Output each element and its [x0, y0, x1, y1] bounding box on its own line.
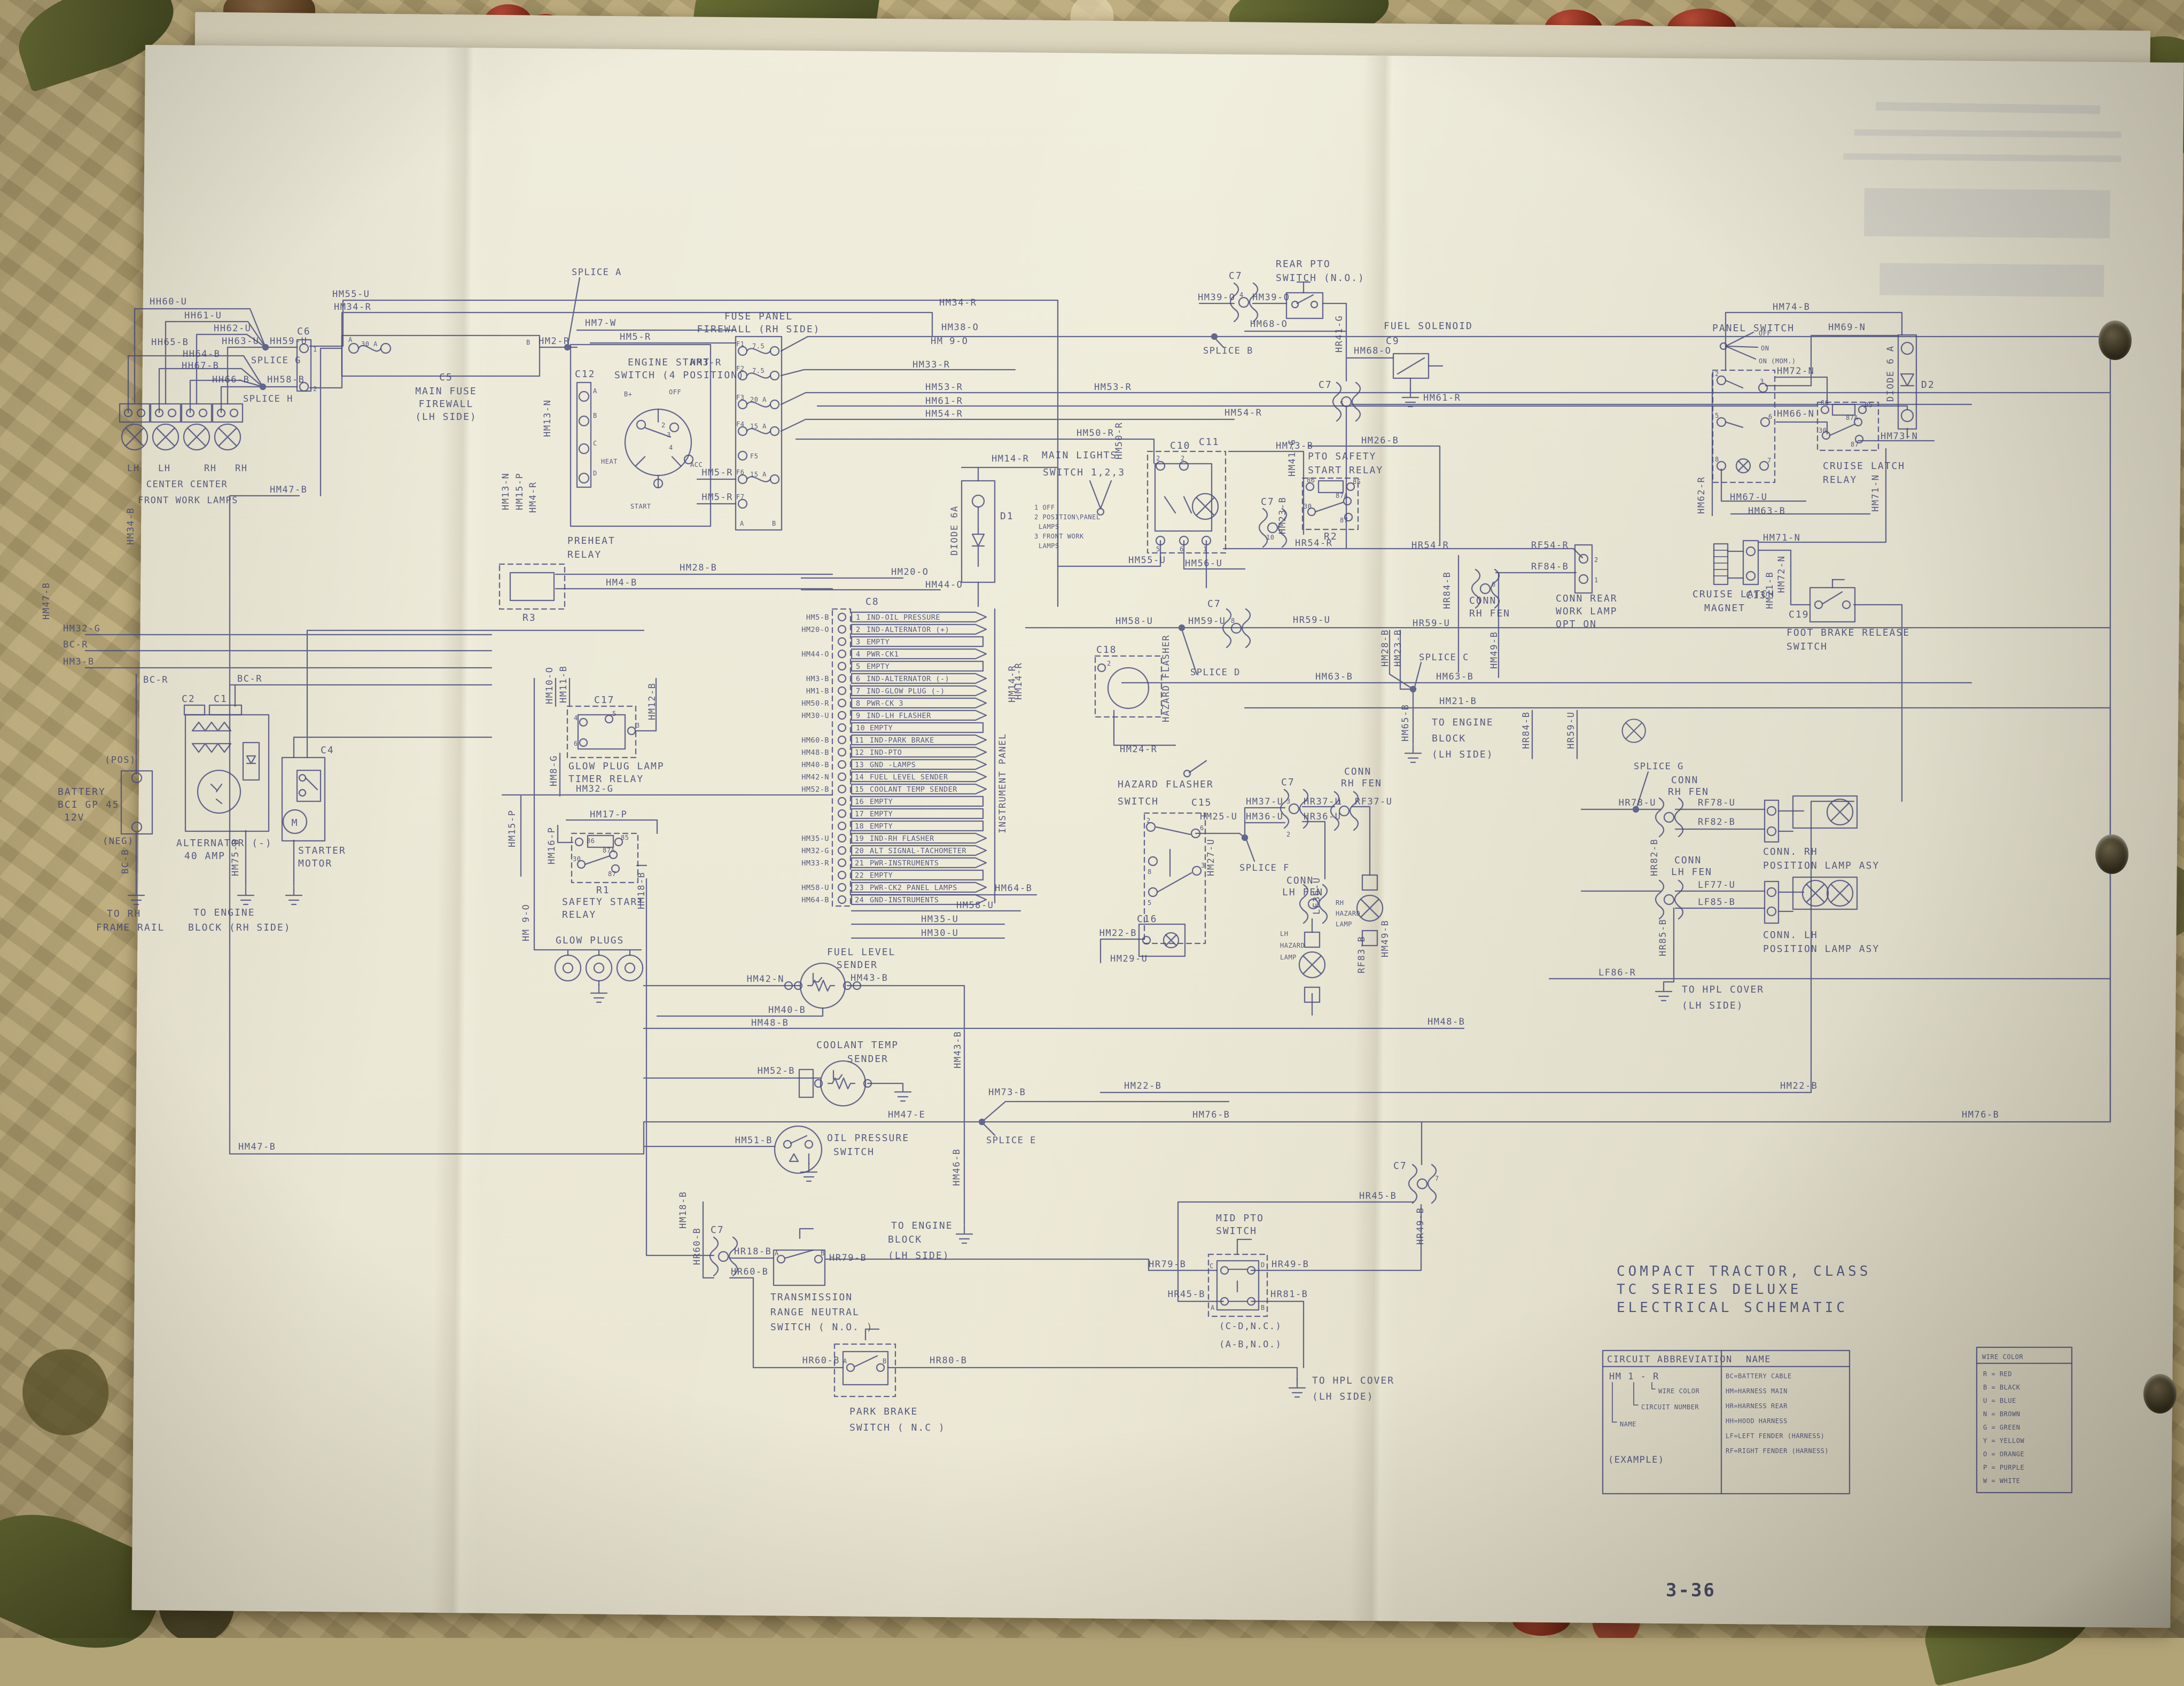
- svg-text:1 OFF: 1 OFF: [1034, 504, 1055, 511]
- svg-text:PTO SAFETY: PTO SAFETY: [1308, 451, 1376, 462]
- svg-text:RF37-U: RF37-U: [1355, 797, 1392, 807]
- svg-text:W = WHITE: W = WHITE: [1983, 1477, 2021, 1485]
- svg-text:EMPTY: EMPTY: [870, 810, 893, 818]
- svg-text:TIMER RELAY: TIMER RELAY: [568, 774, 644, 785]
- svg-text:HH64-B: HH64-B: [183, 349, 220, 360]
- svg-text:C7: C7: [1281, 777, 1295, 788]
- svg-text:B = BLACK: B = BLACK: [1983, 1384, 2021, 1391]
- svg-text:CRUISE LATCH: CRUISE LATCH: [1823, 460, 1905, 472]
- svg-text:C1: C1: [214, 693, 228, 705]
- svg-text:HR78-U: HR78-U: [1619, 798, 1656, 808]
- wire-label: HM54-R: [1224, 408, 1262, 418]
- svg-text:EMPTY: EMPTY: [867, 662, 890, 671]
- svg-text:40 AMP: 40 AMP: [184, 850, 225, 862]
- svg-text:2: 2: [1181, 455, 1185, 462]
- svg-text:HM5-R: HM5-R: [701, 467, 733, 478]
- wire-label: HM39-O: [1252, 292, 1290, 303]
- svg-text:2: 2: [1715, 370, 1719, 378]
- svg-text:WIRE COLOR: WIRE COLOR: [1658, 1387, 1700, 1395]
- svg-text:SWITCH: SWITCH: [1787, 641, 1828, 652]
- svg-text:2: 2: [1146, 817, 1151, 824]
- lamp-label: RH: [235, 463, 247, 474]
- svg-text:20 A: 20 A: [750, 396, 767, 403]
- svg-text:1: 1: [1203, 545, 1207, 553]
- svg-text:(LH SIDE): (LH SIDE): [1682, 1000, 1744, 1011]
- svg-text:85: 85: [621, 834, 629, 841]
- wire-label: HM44-O: [925, 580, 963, 590]
- svg-text:GND -LAMPS: GND -LAMPS: [870, 761, 916, 769]
- svg-text:8: 8: [1715, 456, 1719, 463]
- svg-text:HM72-N: HM72-N: [1777, 366, 1814, 377]
- svg-text:ON (MOM.): ON (MOM.): [1759, 357, 1796, 365]
- svg-text:MAIN LIGHTS: MAIN LIGHTS: [1042, 450, 1117, 461]
- wire-label: HM26-B: [1361, 435, 1399, 446]
- svg-text:TRANSMISSION: TRANSMISSION: [770, 1292, 853, 1303]
- svg-text:D: D: [1261, 1261, 1265, 1269]
- svg-text:C6: C6: [297, 326, 311, 337]
- position-lamp-assemblies: SPLICE G CONNRH FEN HR78-U RF78-U RF82-B…: [1598, 719, 1879, 1011]
- cruise-latch-relay: 8685 3087A87 CRUISE LATCH RELAY HM73-N H…: [1818, 399, 1918, 512]
- svg-text:HH58-B: HH58-B: [267, 374, 305, 385]
- svg-text:HM21-B: HM21-B: [1765, 572, 1775, 609]
- fuse-row: F7: [736, 493, 747, 508]
- connector-label: C7: [1319, 379, 1332, 391]
- svg-text:MAIN FUSE: MAIN FUSE: [415, 386, 477, 397]
- wire-label: SPLICE B: [1203, 346, 1253, 356]
- svg-text:COMPACT TRACTOR, CLASS: COMPACT TRACTOR, CLASS: [1617, 1263, 1871, 1279]
- svg-text:BC=BATTERY CABLE: BC=BATTERY CABLE: [1726, 1372, 1792, 1380]
- svg-text:HM14-R: HM14-R: [992, 454, 1029, 464]
- binder-hole: [2143, 1374, 2177, 1414]
- svg-text:BCI GP 45: BCI GP 45: [58, 799, 120, 810]
- svg-text:F1: F1: [736, 340, 744, 348]
- alternator: C2C1 ALTERNATOR (-) 40 AMP HM75-B TO ENG…: [176, 693, 291, 933]
- svg-text:C16: C16: [1137, 914, 1158, 925]
- svg-text:HH63-U: HH63-U: [222, 336, 259, 347]
- svg-text:HM53-R: HM53-R: [1094, 382, 1132, 393]
- svg-text:6: 6: [574, 740, 578, 747]
- svg-text:C4: C4: [321, 745, 334, 756]
- svg-text:HM=HARNESS MAIN: HM=HARNESS MAIN: [1726, 1387, 1788, 1395]
- svg-text:HM48-B: HM48-B: [801, 748, 829, 757]
- svg-text:HM18-B: HM18-B: [678, 1191, 689, 1229]
- svg-text:GLOW PLUGS: GLOW PLUGS: [556, 935, 624, 946]
- svg-text:SWITCH ( N.O. ): SWITCH ( N.O. ): [770, 1322, 873, 1333]
- svg-text:HM5-R: HM5-R: [701, 492, 733, 503]
- svg-text:LF86-R: LF86-R: [1598, 967, 1636, 978]
- pto-safety-start-relay: PTO SAFETY START RELAY 8685 3087A87 R2: [1302, 451, 1383, 542]
- svg-text:(POS): (POS): [105, 755, 136, 766]
- svg-text:HM40-B: HM40-B: [768, 1005, 806, 1016]
- svg-text:TO HPL COVER: TO HPL COVER: [1682, 984, 1764, 995]
- svg-text:86: 86: [1821, 399, 1829, 407]
- wire-label: HM3-R: [690, 357, 722, 368]
- wire-label: HM55-U: [1128, 555, 1166, 566]
- wire-label: HM22-B: [1124, 1081, 1161, 1091]
- svg-text:DIODE 6A: DIODE 6A: [949, 505, 960, 556]
- svg-text:CONN. RH: CONN. RH: [1763, 846, 1818, 857]
- svg-text:BLOCK: BLOCK: [888, 1234, 922, 1245]
- svg-text:4: 4: [574, 714, 578, 722]
- wire-label: HM56-U: [1185, 558, 1222, 569]
- svg-text:RF78-U: RF78-U: [1698, 798, 1735, 808]
- svg-text:HM63-B: HM63-B: [1315, 672, 1353, 682]
- svg-text:A: A: [775, 1250, 779, 1257]
- svg-text:POSITION LAMP ASY: POSITION LAMP ASY: [1763, 943, 1879, 955]
- svg-text:HM52-B: HM52-B: [801, 785, 829, 794]
- splice-c-area: HR59-U SPLICE C HM28-B HM23-B HM63-B HM6…: [1315, 618, 1577, 762]
- svg-text:B: B: [526, 339, 531, 346]
- wire-label: HM61-R: [1423, 393, 1461, 403]
- svg-text:G = GREEN: G = GREEN: [1983, 1424, 2021, 1431]
- svg-text:HM28-B: HM28-B: [680, 563, 717, 573]
- mid-pto-switch: MID PTO SWITCH CD AB HR49-B HR45-B HR81-…: [1149, 1160, 1439, 1350]
- svg-text:HM63-B: HM63-B: [1436, 672, 1473, 682]
- svg-text:2: 2: [856, 626, 861, 634]
- svg-text:HM37-U: HM37-U: [1246, 797, 1283, 807]
- svg-text:REAR PTO: REAR PTO: [1276, 259, 1331, 270]
- wire-label: HM4-R: [528, 481, 539, 513]
- svg-text:PWR-CK2 PANEL LAMPS: PWR-CK2 PANEL LAMPS: [870, 884, 957, 892]
- svg-text:(LH SIDE): (LH SIDE): [415, 411, 477, 423]
- svg-text:TO ENGINE: TO ENGINE: [1432, 717, 1494, 728]
- svg-text:C5: C5: [439, 372, 453, 383]
- svg-text:O = ORANGE: O = ORANGE: [1983, 1450, 2024, 1458]
- svg-text:D: D: [593, 470, 597, 477]
- svg-text:HM48-B: HM48-B: [751, 1018, 789, 1028]
- svg-text:F4: F4: [736, 420, 744, 428]
- svg-text:HM52-B: HM52-B: [758, 1066, 795, 1076]
- wire-label: HM24-R: [1120, 744, 1157, 755]
- fuse-row: F320 A: [736, 394, 779, 409]
- svg-text:HR59-U: HR59-U: [1566, 712, 1577, 749]
- svg-text:SWITCH: SWITCH: [1216, 1226, 1257, 1237]
- oil-pressure-switch: OIL PRESSURE SWITCH HM51-B: [735, 1126, 909, 1181]
- lamp-label: LH: [158, 463, 170, 474]
- svg-text:F7: F7: [736, 493, 744, 501]
- svg-text:COOLANT TEMP SENDER: COOLANT TEMP SENDER: [870, 785, 957, 794]
- svg-text:87A: 87A: [1336, 492, 1348, 499]
- svg-text:LAMPS: LAMPS: [1039, 523, 1059, 530]
- svg-text:21: 21: [855, 859, 864, 868]
- svg-text:SPLICE G: SPLICE G: [251, 355, 301, 366]
- svg-text:C18: C18: [1096, 644, 1117, 655]
- wire-label: HM58-U: [956, 900, 994, 911]
- svg-text:B: B: [821, 1250, 825, 1257]
- wire-label: HM34-R: [334, 302, 371, 313]
- svg-text:87A: 87A: [1846, 414, 1858, 421]
- svg-text:HH62-U: HH62-U: [214, 323, 251, 334]
- svg-text:3: 3: [1201, 862, 1205, 869]
- svg-text:HM71-N: HM71-N: [1763, 533, 1800, 543]
- svg-text:HM60-B: HM60-B: [801, 736, 829, 745]
- svg-text:NAME: NAME: [1620, 1420, 1636, 1428]
- svg-text:HM1-B: HM1-B: [806, 687, 829, 696]
- svg-text:HR79-B: HR79-B: [829, 1253, 867, 1263]
- svg-text:19: 19: [855, 834, 864, 843]
- wire-label: BC-R: [143, 675, 168, 685]
- svg-text:ELECTRICAL SCHEMATIC: ELECTRICAL SCHEMATIC: [1617, 1300, 1848, 1316]
- svg-text:16: 16: [855, 798, 864, 806]
- svg-text:PWR-CK1: PWR-CK1: [867, 650, 899, 659]
- svg-text:30: 30: [1304, 503, 1312, 510]
- svg-text:86: 86: [1307, 477, 1315, 484]
- lamp-caption: FRONT WORK LAMPS: [138, 495, 238, 506]
- svg-text:(C-D,N.C.): (C-D,N.C.): [1219, 1321, 1282, 1332]
- svg-text:HM32-G: HM32-G: [801, 847, 829, 855]
- svg-text:4: 4: [856, 650, 861, 659]
- svg-text:7.5: 7.5: [752, 342, 765, 350]
- wire-label: HM3-B: [63, 657, 95, 667]
- svg-text:HM42-N: HM42-N: [747, 974, 784, 985]
- svg-text:7: 7: [1435, 1175, 1439, 1182]
- svg-text:HM29-U: HM29-U: [1110, 954, 1148, 964]
- svg-text:87: 87: [608, 870, 616, 878]
- wire-label: HR54-R: [1295, 538, 1332, 549]
- svg-text:FOOT BRAKE RELEASE: FOOT BRAKE RELEASE: [1787, 627, 1910, 638]
- connector-label: C7: [1207, 598, 1221, 610]
- wire-label: HM76-B: [1192, 1110, 1230, 1120]
- fuse-row: F5: [738, 451, 758, 460]
- svg-text:HM 9-O: HM 9-O: [931, 336, 968, 347]
- svg-text:HM50-R: HM50-R: [801, 699, 829, 708]
- svg-text:U = BLUE: U = BLUE: [1983, 1397, 2016, 1404]
- svg-text:IND-ALTERNATOR (-): IND-ALTERNATOR (-): [867, 675, 949, 683]
- svg-text:(LH SIDE): (LH SIDE): [1312, 1391, 1374, 1402]
- svg-text:HM23-B: HM23-B: [1393, 629, 1403, 667]
- svg-text:HM12-B: HM12-B: [647, 683, 658, 720]
- rear-pto-switch: REAR PTO SWITCH (N.O.) C74: [1229, 259, 1365, 322]
- svg-text:HM53-R: HM53-R: [925, 382, 963, 393]
- svg-text:EMPTY: EMPTY: [870, 724, 893, 732]
- svg-text:LAMPS: LAMPS: [1039, 542, 1059, 550]
- svg-text:HM40-B: HM40-B: [801, 761, 829, 769]
- engine-block-ground-lh: TO ENGINE BLOCK (LH SIDE): [888, 1220, 972, 1261]
- svg-text:HH67-B: HH67-B: [182, 361, 219, 371]
- svg-text:HM54-R: HM54-R: [925, 409, 963, 419]
- svg-text:WORK LAMP: WORK LAMP: [1556, 606, 1618, 617]
- svg-text:HM67-U: HM67-U: [1730, 492, 1767, 503]
- svg-text:4: 4: [669, 444, 673, 451]
- svg-text:HM63-B: HM63-B: [1748, 506, 1785, 517]
- svg-text:RH: RH: [1336, 899, 1344, 907]
- svg-text:6: 6: [1768, 413, 1773, 420]
- svg-text:HM72-N: HM72-N: [1776, 556, 1787, 593]
- svg-text:HM73-N: HM73-N: [1881, 431, 1918, 442]
- starter-motor: M C4 STARTER MOTOR: [282, 745, 346, 904]
- svg-text:START RELAY: START RELAY: [1308, 465, 1383, 476]
- svg-text:A: A: [740, 520, 744, 527]
- svg-text:5: 5: [856, 662, 861, 671]
- lamp-caption: CENTER CENTER: [146, 479, 228, 490]
- svg-text:RF83-B: RF83-B: [1356, 936, 1367, 973]
- svg-text:C13: C13: [1746, 590, 1767, 601]
- svg-text:M: M: [292, 817, 299, 829]
- svg-text:LAMP: LAMP: [1336, 920, 1352, 928]
- svg-text:HEAT: HEAT: [601, 458, 618, 465]
- svg-text:ALT SIGNAL-TACHOMETER: ALT SIGNAL-TACHOMETER: [870, 847, 967, 855]
- wire-label: HR41-G: [1334, 315, 1345, 353]
- svg-text:HR37-U: HR37-U: [1304, 797, 1341, 807]
- svg-text:STARTER: STARTER: [298, 845, 346, 856]
- lamp-label: RH: [204, 463, 216, 474]
- svg-text:C: C: [1210, 1262, 1214, 1270]
- svg-text:HM4-B: HM4-B: [606, 577, 637, 588]
- svg-text:D2: D2: [1921, 379, 1935, 391]
- wire-label: HM41-G: [1287, 439, 1298, 477]
- wire-label: HM47-E: [888, 1110, 925, 1120]
- wire-label: BC-R: [63, 639, 88, 650]
- svg-text:R = RED: R = RED: [1983, 1370, 2012, 1378]
- svg-text:22: 22: [855, 871, 864, 880]
- svg-text:13: 13: [855, 761, 864, 769]
- svg-text:B: B: [1261, 1304, 1265, 1312]
- svg-text:ON: ON: [1761, 345, 1769, 352]
- wire-label: HM5-R: [620, 332, 651, 342]
- svg-text:CONN. LH: CONN. LH: [1763, 930, 1818, 941]
- svg-text:OFF: OFF: [669, 388, 681, 396]
- page-number: 3-36: [1666, 1580, 1716, 1601]
- svg-text:HM71-N: HM71-N: [1870, 474, 1881, 512]
- svg-text:12: 12: [855, 748, 864, 757]
- svg-text:RF=RIGHT FENDER (HARNESS): RF=RIGHT FENDER (HARNESS): [1726, 1447, 1829, 1455]
- svg-text:6: 6: [856, 675, 861, 683]
- svg-text:EMPTY: EMPTY: [870, 871, 893, 880]
- wire-label: HM34-B: [126, 508, 136, 545]
- svg-text:HR49-B: HR49-B: [1272, 1259, 1309, 1270]
- svg-text:HM28-B: HM28-B: [1380, 629, 1391, 667]
- fender-connectors-hazard-lamps: HM37-U HM36-U C7 32 HR37-U HR36-U CONNRH…: [1246, 766, 1392, 1002]
- svg-text:HR60-B: HR60-B: [731, 1267, 768, 1277]
- svg-text:RELAY: RELAY: [567, 549, 602, 560]
- wire-label: HM39-O: [1198, 292, 1235, 303]
- svg-text:FRAME RAIL: FRAME RAIL: [96, 922, 165, 933]
- svg-text:RH FEN: RH FEN: [1341, 778, 1382, 789]
- wire-label: HM13-N: [542, 400, 553, 437]
- svg-text:PARK BRAKE: PARK BRAKE: [849, 1406, 918, 1417]
- svg-text:12V: 12V: [64, 812, 85, 823]
- svg-text:HR60-B: HR60-B: [802, 1355, 840, 1366]
- svg-text:CONN: CONN: [1674, 855, 1702, 866]
- fuse-row: F415 A: [736, 420, 779, 435]
- battery: (POS) BATTERY BCI GP 45 12V (NEG) BC-B T…: [58, 755, 165, 933]
- svg-text:WIRE COLOR: WIRE COLOR: [1982, 1353, 2024, 1361]
- svg-text:3: 3: [636, 722, 640, 729]
- svg-text:FIREWALL: FIREWALL: [419, 399, 474, 410]
- wire-label: HM68-O: [1250, 319, 1288, 330]
- transmission-range-neutral-switch: C7 HM18-B HR60-B HR18-B HR60-B AB HR79-B…: [678, 1191, 873, 1333]
- svg-text:IND-PTO: IND-PTO: [870, 748, 902, 757]
- svg-text:BATTERY: BATTERY: [58, 786, 106, 798]
- svg-text:24: 24: [855, 896, 864, 904]
- svg-text:LAMP: LAMP: [1280, 954, 1297, 961]
- svg-text:HM51-B: HM51-B: [735, 1135, 773, 1146]
- svg-text:SPLICE F: SPLICE F: [1239, 863, 1290, 873]
- wire-label: HM47-B: [270, 485, 307, 495]
- svg-text:HM8-G: HM8-G: [549, 755, 559, 786]
- svg-text:1: 1: [856, 613, 861, 622]
- svg-text:P = PURPLE: P = PURPLE: [1983, 1464, 2024, 1471]
- svg-text:6: 6: [1492, 581, 1496, 588]
- svg-text:F3: F3: [736, 394, 744, 401]
- svg-text:HM 1 - R: HM 1 - R: [1609, 1371, 1659, 1382]
- svg-text:5: 5: [1156, 545, 1160, 553]
- wire-label: SPLICE A: [572, 267, 622, 278]
- svg-text:C19: C19: [1789, 609, 1809, 620]
- svg-text:HR81-B: HR81-B: [1270, 1289, 1308, 1300]
- wire-label: HR54-R: [1411, 540, 1449, 551]
- svg-text:30 A: 30 A: [361, 340, 378, 348]
- svg-text:SENDER: SENDER: [837, 959, 878, 971]
- preheat-relay: PREHEAT RELAY R3 HM28-B HM4-B: [500, 535, 717, 623]
- svg-text:1: 1: [313, 346, 317, 353]
- svg-text:HM75-B: HM75-B: [230, 839, 241, 876]
- svg-text:B+: B+: [624, 391, 632, 398]
- svg-text:15: 15: [855, 785, 864, 794]
- lamp-label: LH: [127, 463, 139, 474]
- svg-text:GND-INSTRUMENTS: GND-INSTRUMENTS: [870, 896, 939, 904]
- svg-text:HM50-R: HM50-R: [1077, 428, 1114, 439]
- svg-text:7: 7: [856, 687, 861, 696]
- svg-text:HM3-B: HM3-B: [806, 675, 829, 683]
- svg-text:EMPTY: EMPTY: [870, 798, 893, 806]
- svg-text:HH60-U: HH60-U: [150, 296, 187, 307]
- svg-text:LH: LH: [1280, 930, 1288, 938]
- svg-text:HM15-P: HM15-P: [507, 810, 518, 847]
- svg-text:85: 85: [1865, 401, 1873, 409]
- svg-text:15 A: 15 A: [750, 423, 767, 430]
- svg-text:RELAY: RELAY: [1823, 474, 1857, 486]
- svg-text:2 POSITION\PANEL: 2 POSITION\PANEL: [1034, 513, 1101, 521]
- svg-text:C12: C12: [575, 369, 596, 380]
- pin-label: 8: [1231, 617, 1235, 625]
- svg-text:87A: 87A: [603, 847, 615, 854]
- svg-text:C: C: [593, 440, 597, 447]
- svg-text:HM42-N: HM42-N: [801, 773, 829, 782]
- front-work-lamps: LH LH RH RH CENTER CENTER FRONT WORK LAM…: [120, 404, 247, 506]
- svg-text:HM69-N: HM69-N: [1828, 322, 1866, 333]
- svg-text:3: 3: [1760, 378, 1764, 385]
- svg-text:C9: C9: [1386, 335, 1400, 347]
- svg-text:HR60-B: HR60-B: [692, 1228, 703, 1265]
- svg-text:RH FEN: RH FEN: [1668, 786, 1709, 798]
- svg-text:B: B: [593, 412, 597, 419]
- fuse-row: F615 A: [736, 469, 779, 483]
- svg-text:5: 5: [1715, 412, 1719, 419]
- hazard-flasher-switch: HAZARD FLASHER SWITCH C15 26 835 C16 HM2…: [1099, 761, 1290, 964]
- svg-text:IND-GLOW PLUG (-): IND-GLOW PLUG (-): [867, 687, 945, 696]
- svg-text:5: 5: [612, 710, 617, 717]
- wire-label: HM30-U: [921, 928, 958, 939]
- svg-text:3 FRONT WORK: 3 FRONT WORK: [1034, 533, 1084, 540]
- wire-label: HM73-B: [988, 1087, 1026, 1098]
- svg-text:HM14-R: HM14-R: [1013, 662, 1024, 700]
- hood-harness-wire-labels: HH60-UHH61-U HH62-UHH63-U HH65-BHH64-B H…: [150, 296, 307, 404]
- svg-text:8: 8: [856, 699, 861, 708]
- svg-text:HR45-B: HR45-B: [1168, 1289, 1205, 1300]
- svg-text:14: 14: [855, 773, 864, 782]
- svg-text:HM43-B: HM43-B: [953, 1031, 963, 1068]
- svg-text:EMPTY: EMPTY: [870, 822, 893, 831]
- c8-rows: 1IND-OIL PRESSUREHM5-B 2IND-ALTERNATOR (…: [801, 612, 986, 904]
- wire-label: HM46-B: [951, 1149, 962, 1186]
- svg-text:HM27-U: HM27-U: [1206, 839, 1216, 876]
- svg-text:87: 87: [1340, 517, 1348, 524]
- svg-text:LF=LEFT FENDER (HARNESS): LF=LEFT FENDER (HARNESS): [1726, 1432, 1824, 1440]
- svg-text:HR49-B: HR49-B: [1415, 1207, 1426, 1245]
- svg-text:HM16-P: HM16-P: [547, 827, 557, 864]
- title-block: COMPACT TRACTOR, CLASS TC SERIES DELUXE …: [1617, 1263, 1871, 1316]
